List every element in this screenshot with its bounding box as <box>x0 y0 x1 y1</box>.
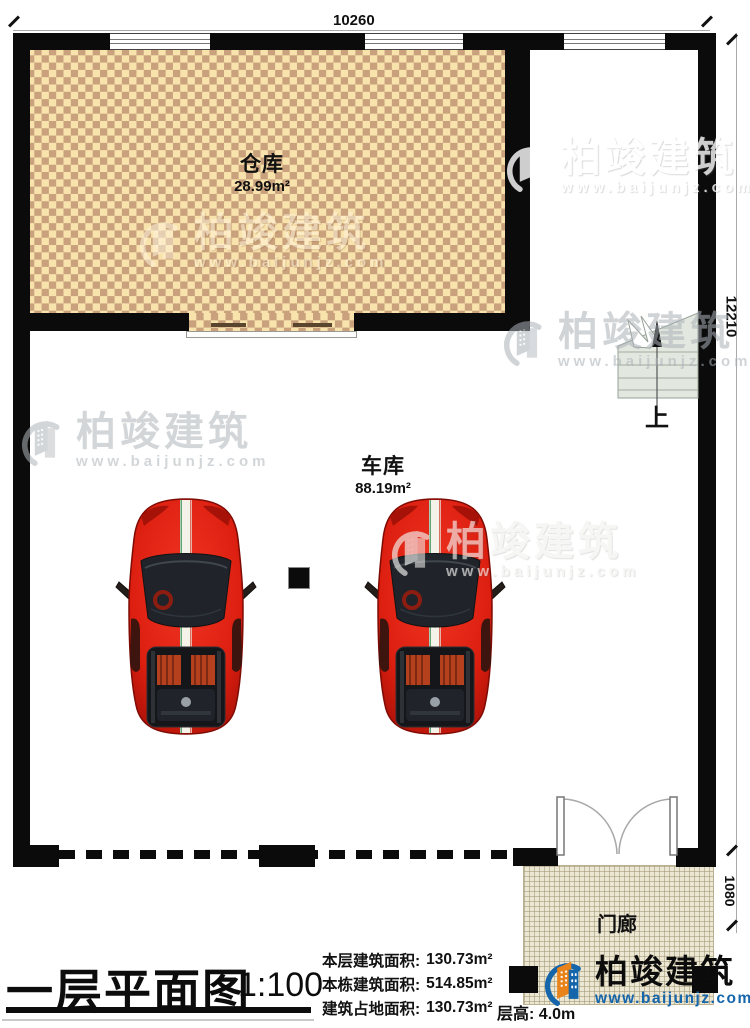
garage-column <box>288 567 310 589</box>
stat-footprint-area: 建筑占地面积: 130.73m² <box>322 996 493 1020</box>
stat-total-area: 本栋建筑面积: 514.85m² <box>322 972 493 996</box>
brand-url: www.baijunjz.com <box>595 990 750 1008</box>
right-dimension-line <box>736 33 737 857</box>
stat-label: 建筑占地面积: <box>322 997 420 1019</box>
stat-label: 本栋建筑面积: <box>322 973 420 995</box>
title-underline <box>6 1007 311 1013</box>
storage-room-area: 28.99m² <box>202 178 322 195</box>
storage-bottom-wall-right <box>354 313 530 331</box>
car-left <box>111 497 261 737</box>
porch-column-left <box>509 966 538 993</box>
garage-name: 车库 <box>333 450 433 480</box>
plan-scale: 1:100 <box>238 966 323 1005</box>
double-door <box>540 788 700 868</box>
car-right <box>360 497 510 737</box>
top-dimension-label: 10260 <box>330 12 378 29</box>
dimension-tick <box>8 15 20 27</box>
stairs-up-label: 上 <box>645 398 669 433</box>
floor-height-label: 层高: <box>497 1006 534 1023</box>
window <box>110 33 210 50</box>
title-underline-light <box>2 1019 314 1021</box>
storage-room-label: 仓库 28.99m² <box>202 148 322 195</box>
garage-label: 车库 88.19m² <box>333 450 433 497</box>
storage-right-wall <box>505 45 530 331</box>
stat-value: 514.85m² <box>426 975 492 993</box>
stat-value: 130.73m² <box>426 999 492 1017</box>
top-dimension-line <box>13 30 710 31</box>
porch-label: 门廊 <box>577 908 657 937</box>
garage-front-pillar <box>259 845 315 867</box>
storage-bottom-wall-left <box>13 313 189 331</box>
garage-front-corner-left <box>13 845 59 867</box>
window <box>564 33 665 50</box>
stat-floor-area: 本层建筑面积: 130.73m² <box>322 948 493 972</box>
sliding-door-leaf <box>293 323 332 327</box>
window <box>365 33 463 50</box>
brand-logo-icon <box>543 955 589 1011</box>
left-wall <box>13 33 30 867</box>
porch-dimension-label: 1080 <box>722 848 738 934</box>
sliding-door-leaf <box>211 323 246 327</box>
garage-area: 88.19m² <box>333 480 433 497</box>
right-dimension-label: 12210 <box>723 274 740 360</box>
brand-logo: 柏竣建筑 www.baijunjz.com <box>543 955 750 1011</box>
watermark: 柏竣建筑www.baijunjz.com <box>20 412 269 472</box>
stat-label: 本层建筑面积: <box>322 949 420 971</box>
dimension-tick <box>701 15 713 27</box>
brand-name: 柏竣建筑 <box>595 955 750 990</box>
floor-plan-page: 10260 12210 1080 上 <box>0 0 750 1028</box>
right-wall <box>698 33 716 867</box>
storage-room-name: 仓库 <box>202 148 322 178</box>
building-stats: 本层建筑面积: 130.73m² 本栋建筑面积: 514.85m² 建筑占地面积… <box>322 948 493 1020</box>
storage-door-threshold <box>186 331 357 338</box>
stat-value: 130.73m² <box>426 951 492 969</box>
